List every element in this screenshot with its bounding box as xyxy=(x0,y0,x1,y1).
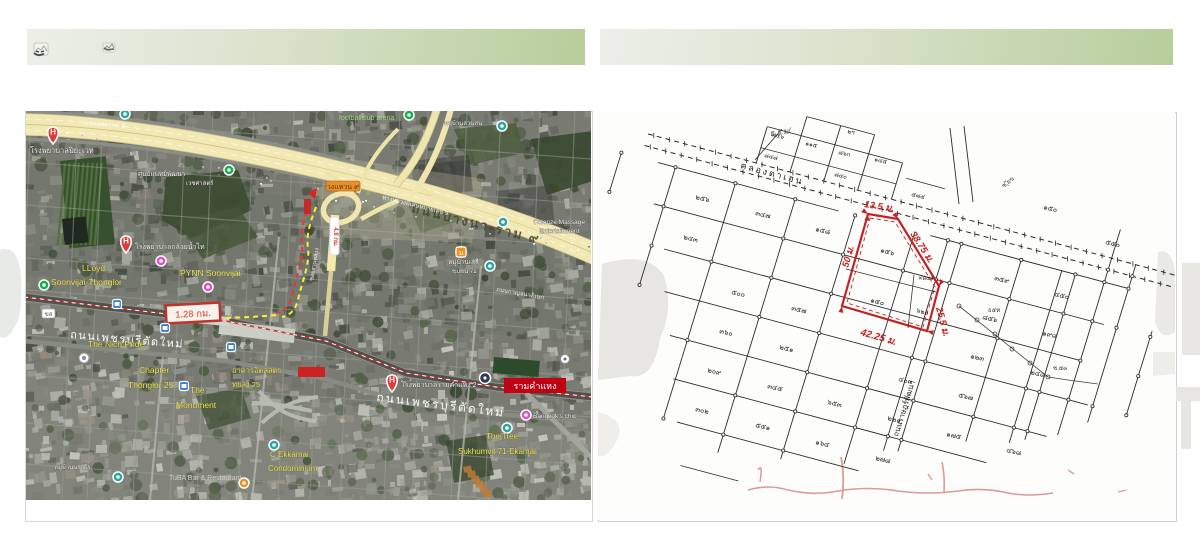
svg-text:ธ๕ท: ธ๕ท xyxy=(988,307,1000,314)
svg-text:C Ekkamai: C Ekkamai xyxy=(270,450,309,459)
svg-text:Sukhumvit 71-Ekamai: Sukhumvit 71-Ekamai xyxy=(458,447,536,456)
svg-text:เวชศาสตร์: เวชศาสตร์ xyxy=(186,179,214,187)
svg-text:ศูนย์แพทย์พัฒนา: ศูนย์แพทย์พัฒนา xyxy=(138,170,186,178)
svg-text:รามคำแหง: รามคำแหง xyxy=(513,381,556,391)
svg-text:ทยลง 25: ทยลง 25 xyxy=(232,380,260,389)
svg-text:ซ.๕๓: ซ.๕๓ xyxy=(1053,365,1067,372)
svg-text:H: H xyxy=(389,376,395,385)
svg-text:Colonze Massage: Colonze Massage xyxy=(533,219,585,226)
svg-text:วงแหวน ๙: วงแหวน ๙ xyxy=(327,184,359,191)
svg-text:Soonvijai-Thonglor: Soonvijai-Thonglor xyxy=(51,277,122,287)
svg-text:อาคารอิตลสตร: อาคารอิตลสตร xyxy=(232,366,281,375)
svg-text:H: H xyxy=(123,237,129,246)
svg-text:หมู่บ้านเสรี: หมู่บ้านเสรี xyxy=(448,258,479,266)
svg-text:โรงพยาบาลปิยะเวท: โรงพยาบาลปิยะเวท xyxy=(30,146,94,155)
svg-text:PYNN Soonvijai: PYNN Soonvijai xyxy=(180,268,241,278)
svg-text:Monument: Monument xyxy=(176,400,217,410)
svg-text:หมู่บ้านสวนสน: หมู่บ้านสวนสน xyxy=(444,120,482,127)
svg-text:LLoyd: LLoyd xyxy=(82,263,105,273)
svg-text:Condominium: Condominium xyxy=(268,464,318,473)
svg-text:✕ด๕ง: ✕ด๕ง xyxy=(918,276,933,282)
svg-text:โรงพยาบาลรามคำแหง 2: โรงพยาบาลรามคำแหง 2 xyxy=(401,380,477,389)
svg-text:Bangkok's chic: Bangkok's chic xyxy=(533,413,577,420)
svg-text:1.28 กม.: 1.28 กม. xyxy=(175,308,211,321)
svg-text:The Nich Pride: The Nich Pride xyxy=(88,339,144,349)
svg-text:TuBA Bar & Restaurant: TuBA Bar & Restaurant xyxy=(169,475,242,482)
svg-text:Entertainment: Entertainment xyxy=(539,228,580,235)
svg-text:ม: ม xyxy=(459,250,464,257)
svg-text:ขส: ขส xyxy=(45,311,53,318)
svg-text:The: The xyxy=(190,385,205,395)
svg-text:Thonglor 25: Thonglor 25 xyxy=(128,380,174,390)
svg-text:4.8 กม.: 4.8 กม. xyxy=(332,227,339,247)
svg-text:The Tree: The Tree xyxy=(486,432,519,441)
svg-text:H: H xyxy=(50,128,56,137)
svg-text:footballclub arena: footballclub arena xyxy=(339,115,394,122)
svg-text:Chapter: Chapter xyxy=(139,365,169,375)
svg-text:ชุมชน 71: ชุมชน 71 xyxy=(452,268,477,275)
svg-text:หมู่บ้านนราธร: หมู่บ้านนราธร xyxy=(54,464,92,471)
